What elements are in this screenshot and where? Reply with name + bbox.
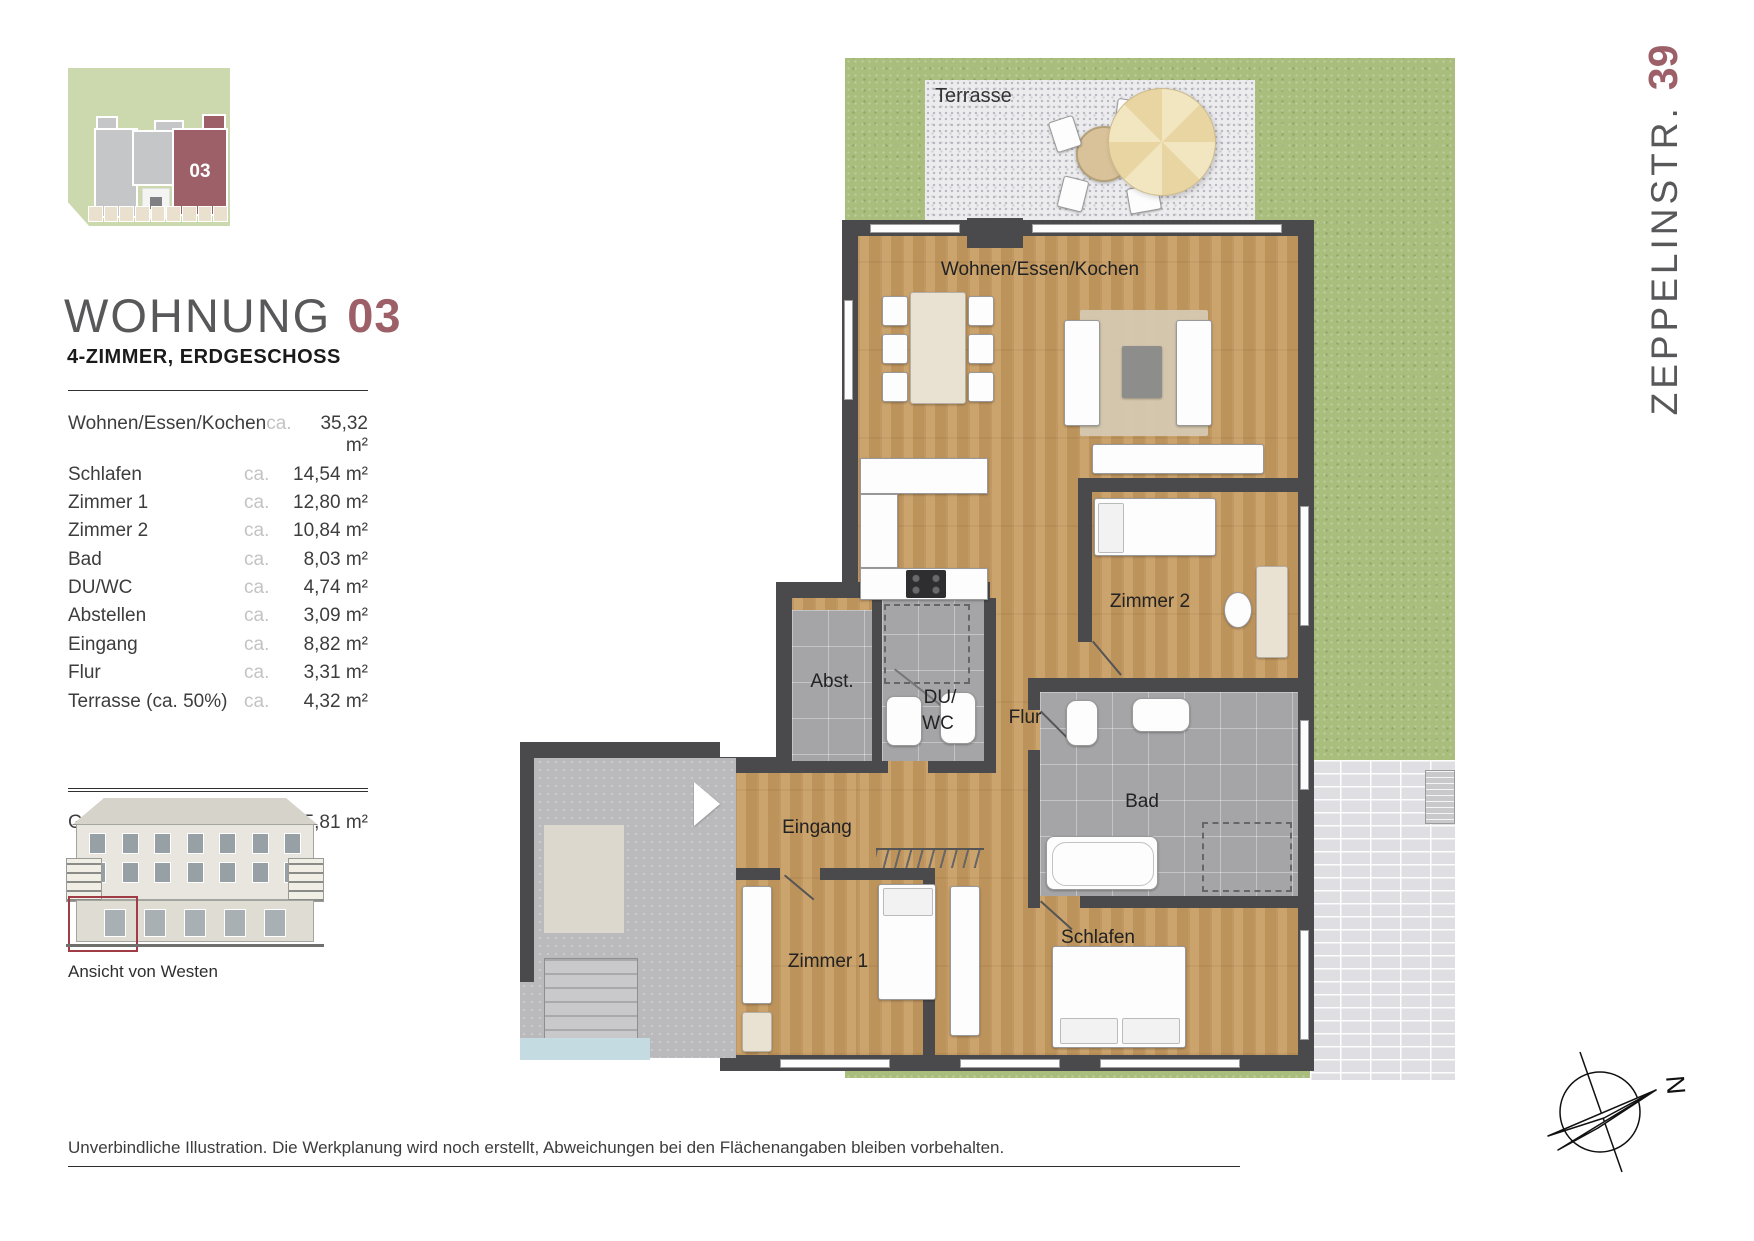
street-name: ZEPPELINSTR. [1644,104,1686,415]
exterior-wall-pier [967,218,1023,248]
room-label-zimmer2: Zimmer 2 [1110,591,1190,613]
area-table-row: Wohnen/Essen/Kochen ca. 35,32 m² [68,410,368,460]
interior-wall [872,598,882,761]
dresser [742,1012,772,1052]
toilet [1066,700,1098,746]
approx-label: ca. [244,634,280,656]
floor-plan: Terrasse [480,30,1455,1085]
site-plan-building-highlight: 03 [172,128,228,216]
shower [1202,822,1292,892]
exterior-wall [842,220,858,598]
room-label-flur: Flur [1009,707,1042,729]
terrace-parasol [1108,88,1216,196]
interior-wall [1078,478,1298,492]
dining-chair [882,334,908,364]
room-area-value: 4,32 m² [280,691,368,713]
elevation-balcony-right [288,858,324,902]
approx-label: ca. [244,464,280,486]
window [1300,720,1309,790]
interior-wall [984,598,996,773]
approx-label: ca. [244,691,280,713]
window [1300,506,1309,626]
window [780,1059,890,1068]
room-label-bad: Bad [1125,791,1159,813]
pillow [883,888,933,916]
window [844,300,853,400]
window [1100,1059,1240,1068]
area-table-row: DU/WC ca. 4,74 m² [68,574,368,602]
elevation-caption: Ansicht von Westen [68,962,218,982]
room-area-value: 10,84 m² [280,520,368,542]
area-table-row: Zimmer 2 ca. 10,84 m² [68,517,368,545]
room-area-value: 8,82 m² [280,634,368,656]
dining-chair [968,334,994,364]
divider-line [68,390,368,391]
room-name: DU/WC [68,577,244,599]
dining-chair [882,372,908,402]
area-table-row: Terrasse (ca. 50%) ca. 4,32 m² [68,687,368,715]
room-name: Eingang [68,634,244,656]
room-label-terrasse: Terrasse [935,85,1012,108]
elevation-window-row [77,862,313,883]
pillow [1060,1018,1118,1044]
area-table-row: Eingang ca. 8,82 m² [68,631,368,659]
interior-wall [1080,896,1298,908]
room-label-schlafen: Schlafen [1061,927,1135,949]
elevation-roof [72,798,318,825]
room-name: Abstellen [68,605,244,627]
entrance-arrow-icon [694,782,720,826]
desk-chair [1224,592,1252,628]
area-table: Wohnen/Essen/Kochen ca. 35,32 m² Schlafe… [68,410,368,716]
desk [1256,566,1288,658]
interior-wall [735,868,780,880]
window [960,1059,1060,1068]
room-area-value: 35,32 m² [296,413,368,457]
approx-label: ca. [244,520,280,542]
exterior-wall [776,582,792,773]
elevation-window-row [77,833,313,854]
room-label-wc: WC [922,713,954,735]
approx-label: ca. [266,413,296,435]
site-plan: 03 [68,68,230,226]
interior-wall [1028,750,1040,908]
pillow [1098,503,1124,553]
wardrobe [950,886,980,1036]
sink [1132,698,1190,732]
common-wall [520,742,534,982]
interior-wall [1078,492,1092,642]
room-area-value: 3,31 m² [280,662,368,684]
approx-label: ca. [244,492,280,514]
room-label-du: DU/ [924,687,957,709]
sofa [1064,320,1100,426]
area-table-row: Abstellen ca. 3,09 m² [68,602,368,630]
interior-wall [820,868,935,880]
dining-chair [968,296,994,326]
brochure-page: 03 WOHNUNG 03 4-ZIMMER, ERDGESCHOSS Wohn… [0,0,1754,1241]
approx-label: ca. [244,577,280,599]
dining-chair [968,372,994,402]
dining-chair [882,296,908,326]
room-area-value: 4,74 m² [280,577,368,599]
west-elevation-drawing [66,798,324,956]
street-number: 39 [1640,45,1687,91]
disclaimer-text: Unverbindliche Illustration. Die Werkpla… [68,1138,1004,1158]
sofa [1176,320,1212,426]
title-main: WOHNUNG [64,288,331,343]
room-label-wohnen: Wohnen/Essen/Kochen [941,259,1139,281]
site-plan-parking-row [88,206,228,222]
room-name: Schlafen [68,464,244,486]
room-area-value: 14,54 m² [280,464,368,486]
room-name: Terrasse (ca. 50%) [68,691,244,713]
room-label-zimmer1: Zimmer 1 [788,951,868,973]
approx-label: ca. [244,549,280,571]
sink [886,696,922,746]
area-table-row: Bad ca. 8,03 m² [68,546,368,574]
doormat-grate [1425,770,1455,824]
page-title: WOHNUNG 03 [64,288,402,343]
area-table-row: Flur ca. 3,31 m² [68,659,368,687]
room-area-value: 3,09 m² [280,605,368,627]
north-compass-icon: N [1542,1046,1692,1176]
street-title: ZEPPELINSTR. 39 [1640,40,1696,420]
coffee-table [1122,346,1162,398]
site-plan-unit-label: 03 [189,161,210,183]
interior-wall [928,761,996,773]
bathtub-inner [1052,842,1154,886]
room-name: Bad [68,549,244,571]
sideboard [1092,444,1264,474]
window [870,224,960,233]
room-name: Flur [68,662,244,684]
kitchen-counter [860,494,898,568]
svg-text:N: N [1660,1074,1692,1095]
footer-line [68,1166,1240,1167]
room-name: Zimmer 2 [68,520,244,542]
total-divider [68,788,368,792]
kitchen-counter [860,458,988,494]
site-plan-building-gray [96,116,118,130]
title-unit-number: 03 [347,288,401,343]
interior-wall [776,761,888,773]
room-area-value: 8,03 m² [280,549,368,571]
approx-label: ca. [244,605,280,627]
area-table-row: Zimmer 1 ca. 12,80 m² [68,489,368,517]
room-name: Zimmer 1 [68,492,244,514]
room-name: Wohnen/Essen/Kochen [68,413,266,435]
dining-table [910,292,966,404]
page-subtitle: 4-ZIMMER, ERDGESCHOSS [67,346,341,369]
pillow [1122,1018,1180,1044]
water-feature [520,1038,650,1060]
window-terrace-door [1032,224,1282,233]
window [1300,930,1309,1040]
elevation-ground-line [66,944,324,947]
cooktop [906,570,946,598]
elevation-upper-floors [76,824,314,900]
coat-rail [876,848,984,868]
room-label-eingang: Eingang [782,817,852,839]
elevator [544,825,624,933]
wardrobe [742,886,772,1004]
approx-label: ca. [244,662,280,684]
room-area-value: 12,80 m² [280,492,368,514]
room-label-abstellen: Abst. [810,671,853,693]
area-table-row: Schlafen ca. 14,54 m² [68,460,368,488]
common-wall [520,742,720,758]
interior-wall [1028,678,1298,692]
